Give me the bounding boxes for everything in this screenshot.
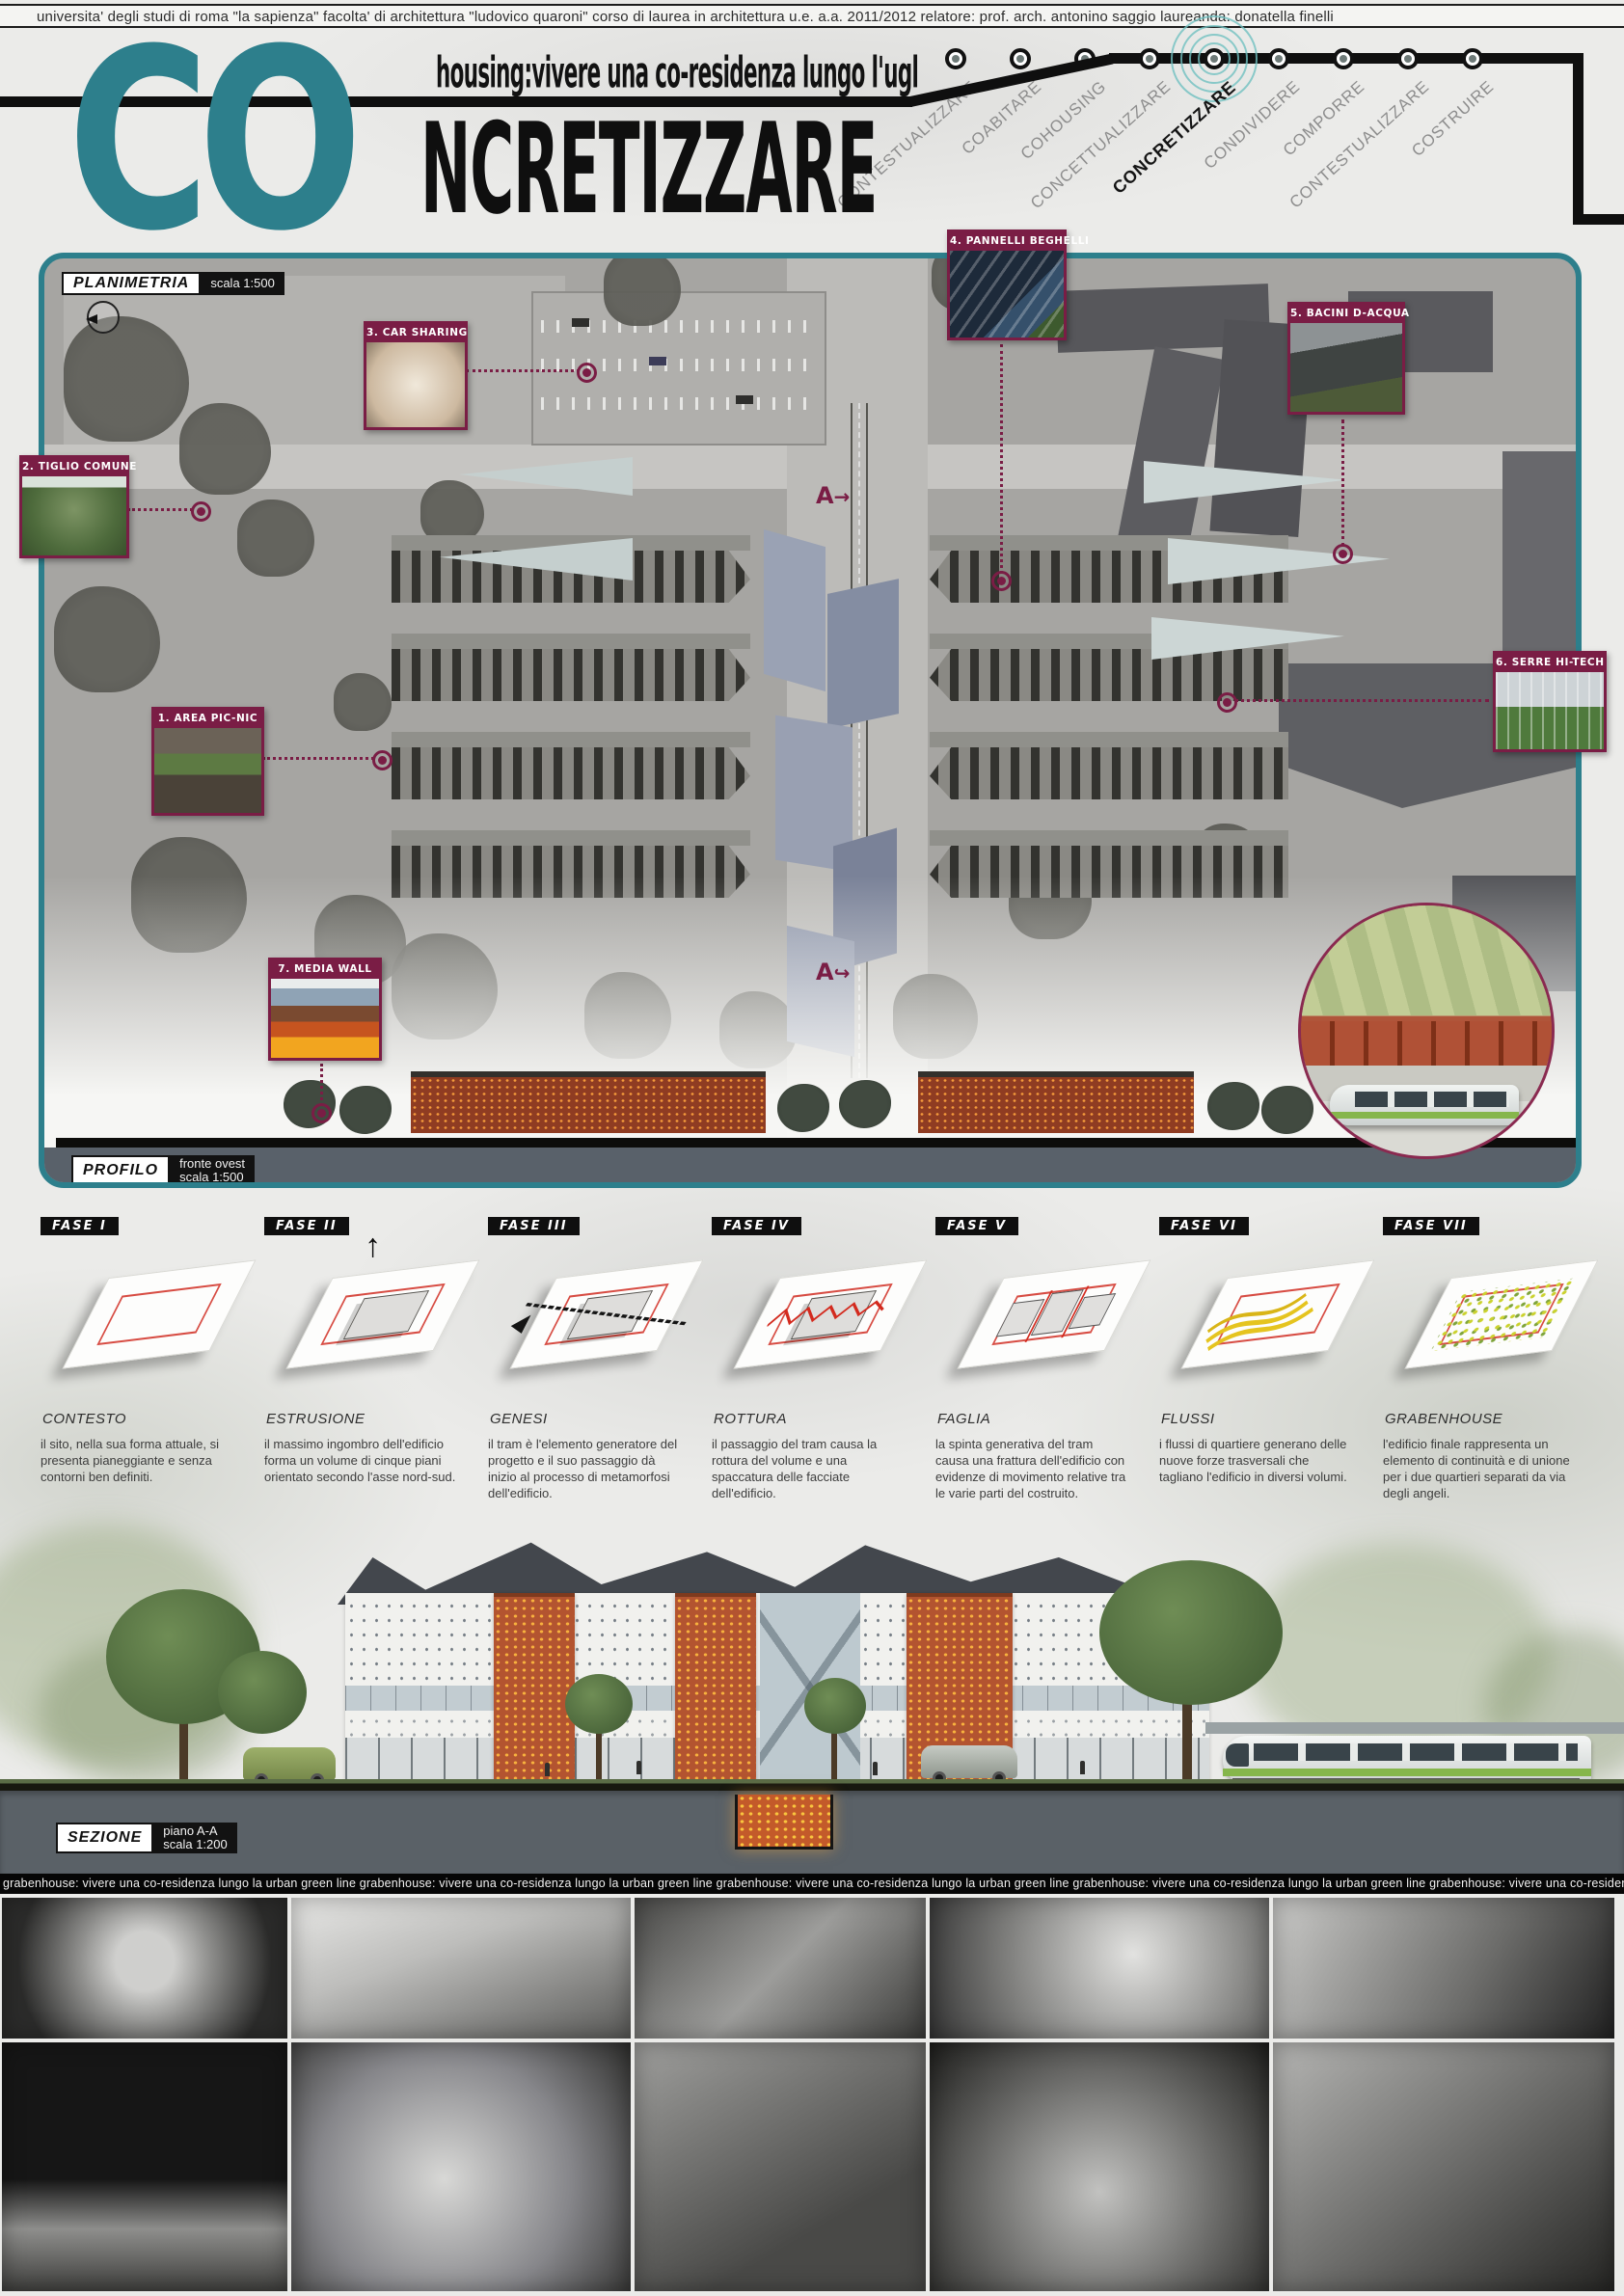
metro-station-condividere: CONDIVIDERE	[1268, 48, 1289, 69]
sezione-scale: piano A-A scala 1:200	[153, 1823, 237, 1853]
leader-target-icon	[191, 501, 211, 522]
leader-target-icon	[577, 363, 597, 383]
brick-tower	[675, 1593, 756, 1786]
model-photo-r2c3	[635, 2042, 926, 2291]
profilo-scale-text: scala 1:500	[179, 1171, 245, 1184]
ticker-text: grabenhouse: vivere una co-residenza lun…	[3, 1877, 1624, 1890]
callout-media-wall: 7. MEDIA WALL	[268, 958, 382, 1061]
callout-photo-water	[1290, 323, 1402, 412]
callout-label: 6. SERRE HI-TECH	[1496, 654, 1604, 672]
parked-car	[572, 318, 589, 327]
leader-line	[1234, 699, 1489, 702]
profile-ground-rule	[56, 1138, 1576, 1148]
callout-photo-solar	[950, 251, 1064, 338]
tram-arrowhead-icon	[497, 1315, 530, 1337]
leader-target-icon	[372, 750, 392, 770]
ticker-bar: grabenhouse: vivere una co-residenza lun…	[0, 1874, 1624, 1894]
inset-tram	[1330, 1085, 1519, 1125]
callout-photo-mediawall	[271, 979, 379, 1058]
title-co: CO	[68, 44, 351, 237]
phase-diagram	[488, 1235, 689, 1397]
station-dot-icon	[1397, 48, 1419, 69]
station-dot-icon	[1268, 48, 1289, 69]
section-marker-letter: A	[816, 959, 834, 986]
wing-roof	[392, 830, 750, 846]
metro-station-contestualizzare-2: CONTESTUALIZZARE	[1397, 48, 1419, 69]
callout-label: 7. MEDIA WALL	[271, 960, 379, 979]
section-marker-a-top: A→	[816, 482, 850, 509]
underground-media-wall	[735, 1795, 833, 1850]
parked-car	[736, 395, 753, 404]
model-photo-r2c2	[291, 2042, 631, 2291]
phase-column-6: FASE VI FLUSSI i flussi di quartiere gen…	[1151, 1217, 1373, 1550]
leader-target-icon	[311, 1103, 332, 1123]
perspective-inset	[1298, 903, 1555, 1159]
phase-text: l'edificio finale rappresenta un element…	[1383, 1436, 1576, 1502]
phase-text: il passaggio del tram causa la rottura d…	[712, 1436, 905, 1502]
station-dot-icon	[1333, 48, 1354, 69]
sezione-label: SEZIONE piano A-A scala 1:200	[56, 1823, 237, 1853]
elevation-brick-strip	[411, 1071, 766, 1133]
profilo-scale: fronte ovest scala 1:500	[170, 1155, 255, 1186]
model-photo-r1c1	[2, 1898, 287, 2039]
sezione-scale-text: scala 1:200	[163, 1838, 228, 1851]
phase-title: ESTRUSIONE	[266, 1411, 465, 1427]
section-tree	[218, 1651, 307, 1734]
parking-row	[541, 397, 811, 410]
section-arrow-icon: →	[834, 485, 851, 508]
leader-line	[1000, 344, 1003, 574]
callout-label: 4. PANNELLI BEGHELLI	[950, 232, 1064, 251]
profilo-title: PROFILO	[71, 1155, 170, 1186]
metro-station-concretizzare-active: CONCRETIZZARE	[1204, 48, 1225, 69]
building-wing-row	[392, 649, 750, 701]
model-photo-r2c1	[2, 2042, 287, 2291]
tree-trunk	[831, 1728, 837, 1780]
inset-brick-band	[1301, 1021, 1552, 1067]
station-dot-icon	[1010, 48, 1031, 69]
phase-text: il sito, nella sua forma attuale, si pre…	[41, 1436, 233, 1485]
leader-line	[127, 508, 193, 511]
tree-canopy	[54, 586, 160, 692]
phase-title: FLUSSI	[1161, 1411, 1360, 1427]
callout-photo-tree	[22, 476, 126, 555]
tree-trunk	[596, 1726, 602, 1780]
north-arrow-icon	[87, 301, 120, 334]
tram-green-stripe	[1223, 1769, 1591, 1776]
station-dot-icon	[1462, 48, 1483, 69]
wing-roof	[930, 732, 1288, 747]
phase-title: GRABENHOUSE	[1385, 1411, 1583, 1427]
section-tree	[1099, 1560, 1283, 1705]
inset-tram-stripe	[1330, 1112, 1519, 1119]
phase-label: FASE I	[41, 1217, 119, 1235]
callout-label: 3. CAR SHARING	[366, 324, 465, 342]
metro-line-corner-vertical	[1573, 53, 1583, 225]
phase-text: il tram è l'elemento generatore del prog…	[488, 1436, 681, 1502]
phase-column-2: FASE II ↑ ESTRUSIONE il massimo ingombro…	[257, 1217, 478, 1550]
poster-root: universita' degli studi di roma "la sapi…	[0, 0, 1624, 2296]
phase-diagram	[1159, 1235, 1360, 1397]
phase-column-5: FASE V FAGLIA la spinta generativa del t…	[928, 1217, 1150, 1550]
leader-target-icon	[1217, 692, 1237, 713]
phase-column-7: FASE VII GRABENHOUSE l'edificio finale r…	[1375, 1217, 1597, 1550]
callout-area-picnic: 1. AREA PIC-NIC	[151, 707, 264, 816]
section-marker-letter: A	[816, 482, 834, 509]
building-wing-row	[392, 747, 750, 799]
phase-diagram	[1383, 1235, 1583, 1397]
car-gray	[921, 1745, 1017, 1778]
section-tree	[565, 1674, 633, 1734]
sezione-sub: piano A-A	[163, 1824, 228, 1838]
city-block	[1502, 451, 1582, 654]
phase-label: FASE IV	[712, 1217, 801, 1235]
phase-text: il massimo ingombro dell'edificio forma …	[264, 1436, 457, 1485]
callout-label: 2. TIGLIO COMUNE	[22, 458, 126, 476]
profilo-label: PROFILO fronte ovest scala 1:500	[71, 1155, 255, 1186]
model-photo-r2c5	[1273, 2042, 1614, 2291]
leader-target-icon	[1333, 544, 1353, 564]
tram-windows	[1254, 1743, 1578, 1761]
phase-title: GENESI	[490, 1411, 689, 1427]
station-dot-icon	[1204, 48, 1225, 69]
phase-label: FASE VI	[1159, 1217, 1249, 1235]
phase-diagram	[935, 1235, 1136, 1397]
phase-diagram	[41, 1235, 241, 1397]
phase-column-4: FASE IV ROTTURA il passaggio del tram ca…	[704, 1217, 926, 1550]
tree-canopy	[237, 500, 314, 577]
model-photo-r2c4	[930, 2042, 1269, 2291]
title-subtitle: housing:vivere una co-residenza lungo l'…	[436, 48, 918, 98]
tram-platform	[1205, 1722, 1624, 1734]
wing-roof	[930, 830, 1288, 846]
callout-tiglio-comune: 2. TIGLIO COMUNE	[19, 455, 129, 558]
callout-label: 1. AREA PIC-NIC	[154, 710, 261, 728]
extrusion-arrow-icon: ↑	[365, 1228, 381, 1265]
building-wing-row	[930, 649, 1288, 701]
profilo-sub: fronte ovest	[179, 1157, 245, 1171]
model-photo-r1c4	[930, 1898, 1269, 2039]
person-figure	[873, 1762, 878, 1775]
car-green	[243, 1747, 336, 1780]
callout-photo-greenhouse	[1496, 672, 1604, 749]
context-outline	[97, 1283, 222, 1345]
person-figure	[636, 1761, 641, 1774]
phase-diagram	[712, 1235, 912, 1397]
flow-arrows-icon	[1194, 1272, 1362, 1355]
parked-car	[649, 357, 666, 365]
leader-line	[262, 757, 374, 760]
metro-station-concettualizzare: CONCETTUALIZZARE	[1139, 48, 1160, 69]
callout-bacini-acqua: 5. BACINI D-ACQUA	[1287, 302, 1405, 415]
sezione-title: SEZIONE	[56, 1823, 153, 1853]
phase-label: FASE VII	[1383, 1217, 1479, 1235]
leader-target-icon	[991, 571, 1012, 591]
brick-tower	[494, 1593, 575, 1786]
phase-text: i flussi di quartiere generano delle nuo…	[1159, 1436, 1352, 1485]
phase-label: FASE V	[935, 1217, 1018, 1235]
grabenhouse-field	[1431, 1279, 1575, 1351]
inset-fields	[1301, 905, 1552, 1015]
callout-serre-hitech: 6. SERRE HI-TECH	[1493, 651, 1607, 752]
callout-car-sharing: 3. CAR SHARING	[364, 321, 468, 430]
title-main: NCRETIZZARE	[420, 106, 877, 231]
central-shard	[827, 579, 899, 729]
model-photo-r1c5	[1273, 1898, 1614, 2039]
tree-canopy	[604, 253, 681, 326]
tram-windshield	[1226, 1743, 1249, 1767]
elevation-brick-strip	[918, 1071, 1194, 1133]
phase-text: la spinta generativa del tram causa una …	[935, 1436, 1128, 1502]
person-figure	[1080, 1761, 1085, 1774]
section-marker-a-bottom: A↪	[816, 959, 850, 986]
phase-label: FASE II	[264, 1217, 349, 1235]
profile-band	[44, 1148, 1582, 1188]
building-wing-row	[930, 747, 1288, 799]
metro-station-costruire: COSTRUIRE	[1462, 48, 1483, 69]
phases-row: FASE I CONTESTO il sito, nella sua forma…	[33, 1217, 1597, 1550]
model-photo-r1c2	[291, 1898, 631, 2039]
station-dot-icon	[945, 48, 966, 69]
metro-line-corner-horizontal	[1573, 214, 1624, 225]
metro-station-comporre: COMPORRE	[1333, 48, 1354, 69]
tree-canopy	[334, 673, 392, 731]
central-shard	[764, 529, 826, 691]
callout-photo-keys	[366, 342, 465, 427]
model-photo-gallery	[2, 1898, 1614, 2291]
callout-label: 5. BACINI D-ACQUA	[1290, 305, 1402, 323]
callout-pannelli-beghelli: 4. PANNELLI BEGHELLI	[947, 230, 1067, 340]
phase-title: ROTTURA	[714, 1411, 912, 1427]
section-tree	[804, 1678, 866, 1734]
leader-line	[1341, 419, 1344, 547]
phase-column-1: FASE I CONTESTO il sito, nella sua forma…	[33, 1217, 255, 1550]
phase-title: FAGLIA	[937, 1411, 1136, 1427]
inset-tram-windows	[1355, 1092, 1509, 1107]
leader-line	[320, 1064, 323, 1106]
phase-label: FASE III	[488, 1217, 580, 1235]
station-dot-icon	[1139, 48, 1160, 69]
phase-column-3: FASE III GENESI il tram è l'elemento gen…	[480, 1217, 702, 1550]
metro-station-coabitare: COABITARE	[1010, 48, 1031, 69]
phase-title: CONTESTO	[42, 1411, 241, 1427]
model-photo-r1c3	[635, 1898, 926, 2039]
parking-lot	[531, 291, 826, 446]
wing-roof	[392, 634, 750, 649]
leader-line	[466, 369, 580, 372]
wing-roof	[392, 732, 750, 747]
metro-station-contestualizzare: CONTESTUALIZZARE	[945, 48, 966, 69]
person-figure	[545, 1763, 550, 1776]
section-tram	[1223, 1736, 1591, 1784]
section-arrow-icon: ↪	[834, 961, 851, 985]
phase-diagram: ↑	[264, 1235, 465, 1397]
callout-photo-picnic	[154, 728, 261, 813]
